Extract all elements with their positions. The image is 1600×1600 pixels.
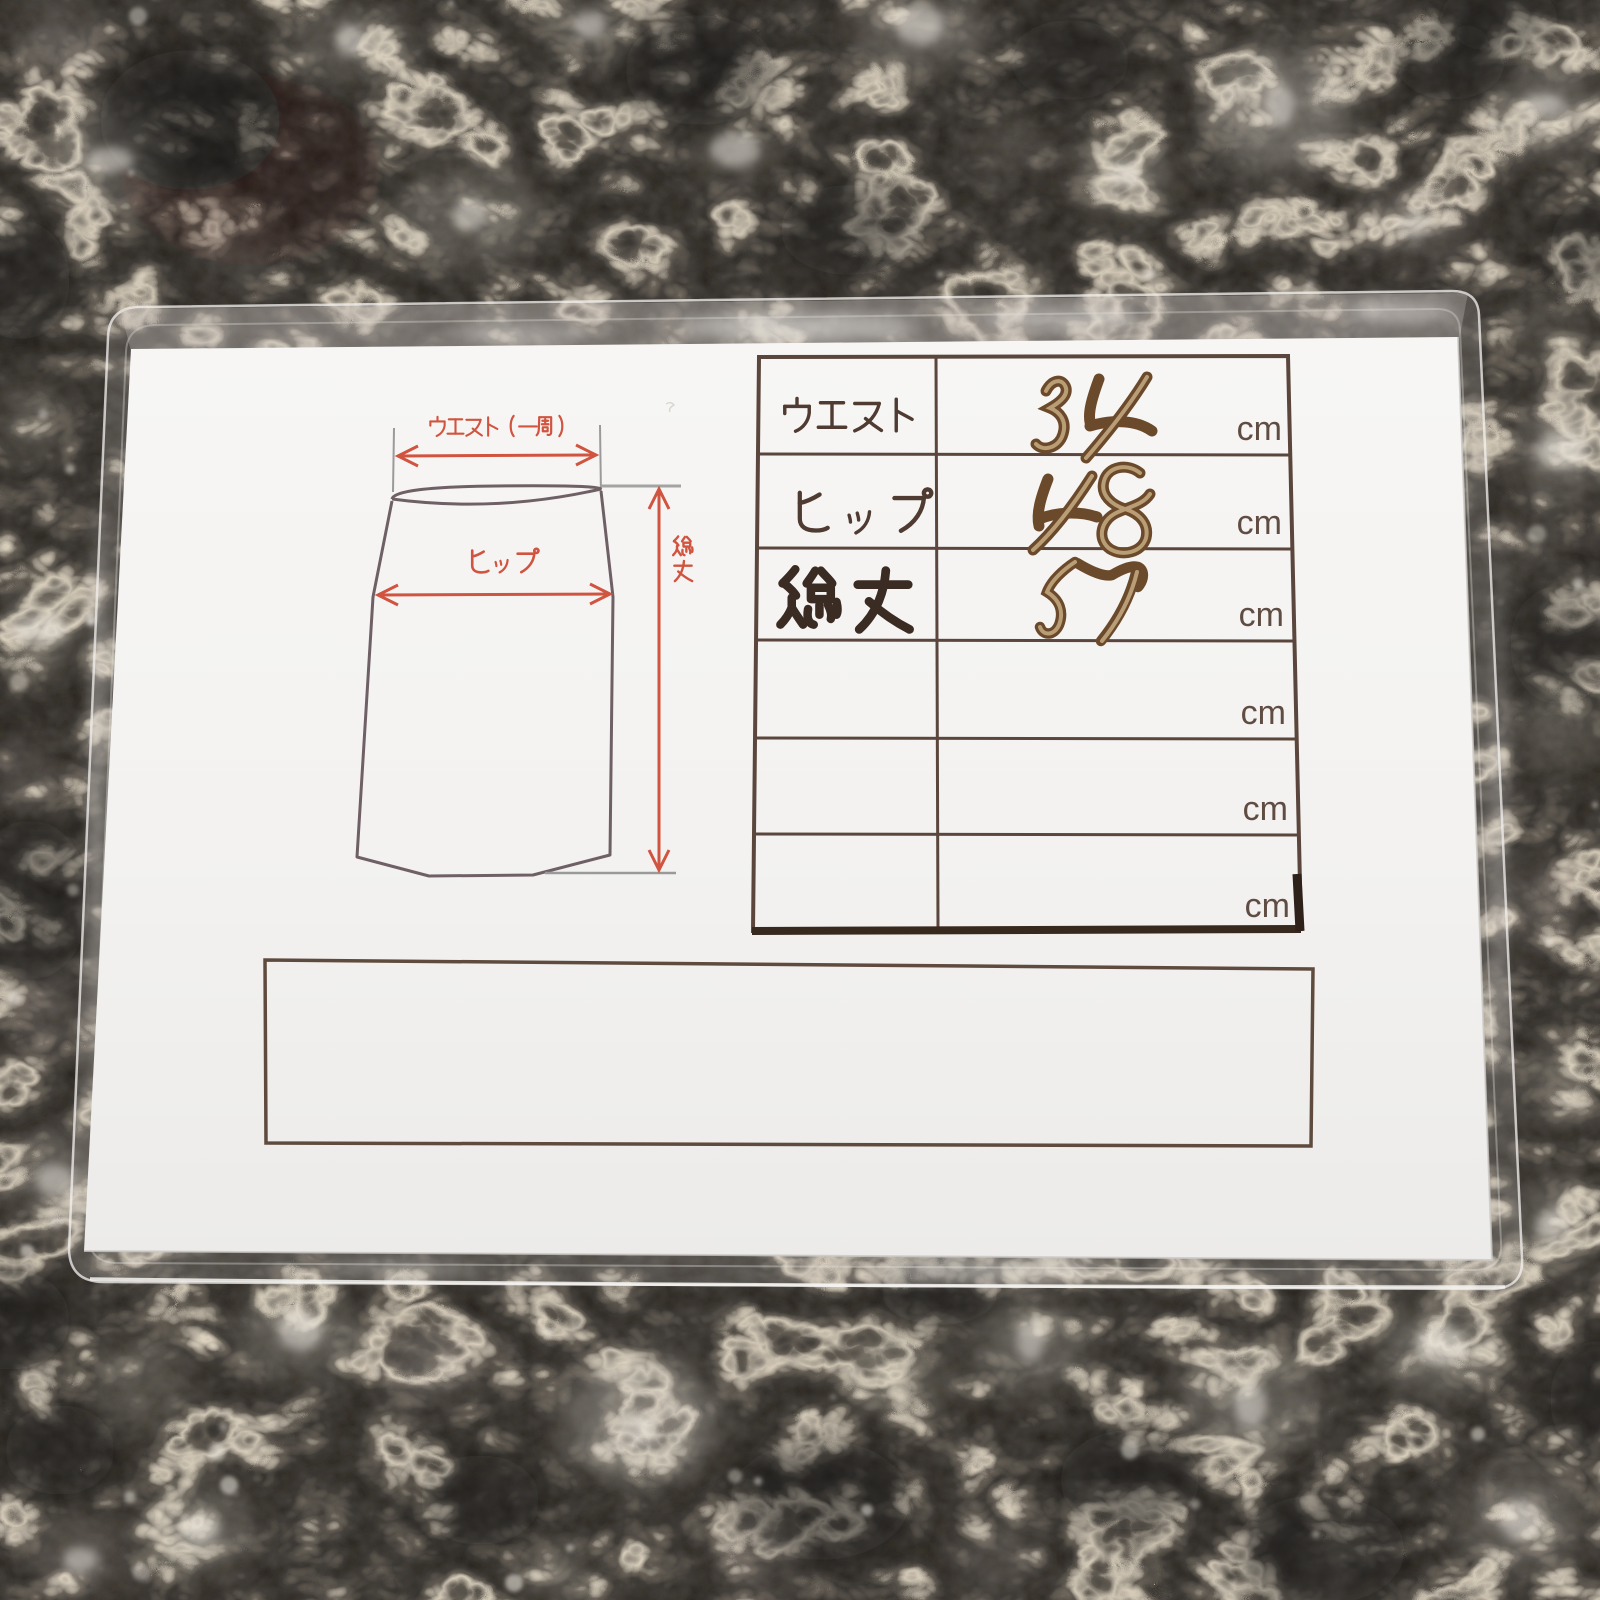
svg-text:cm: cm	[1243, 790, 1288, 828]
svg-text:cm: cm	[1241, 694, 1286, 732]
svg-text:cm: cm	[1245, 887, 1290, 925]
svg-text:cm: cm	[1237, 410, 1282, 448]
svg-text:cm: cm	[1237, 504, 1282, 542]
svg-text:cm: cm	[1239, 596, 1284, 634]
